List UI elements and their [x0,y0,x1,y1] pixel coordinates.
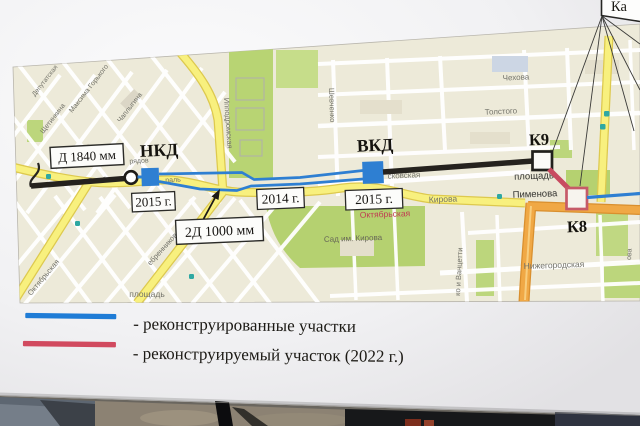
poster-scene: Депутатская Щетинкина Максима Горького Ч… [0,0,640,426]
label-box-2014: 2014 г. [257,187,305,209]
photo-of-poster: Депутатская Щетинкина Максима Горького Ч… [0,0,640,426]
label-k8: К8 [567,217,588,237]
label-box-2d1000: 2Д 1000 мм [176,217,264,245]
street-label: Чехова [502,72,529,82]
gravel-patch [140,410,220,426]
street-label: ова [626,248,634,260]
chamber-k9-square [533,152,553,171]
street-label: Толстого [485,106,518,116]
legend-swatch-red [23,341,116,348]
red-debris [424,420,434,426]
chamber-nkd-square [141,168,159,187]
street-label: Шевченко [327,88,337,123]
label-box-d1840: Д 1840 мм [50,144,124,169]
label-2d1000: 2Д 1000 мм [185,223,255,241]
street-label: Нижегородская [523,259,584,271]
callout-label: Ка [611,0,627,15]
square-label: площадь [514,170,554,182]
street-label: Кирова [429,194,458,205]
label-nkd: НКД [139,139,178,161]
chamber-vkd-square [362,161,384,184]
label-k9: К9 [529,130,550,150]
node-circle-marker [125,171,138,184]
square-label: площадь [129,289,165,299]
red-debris [405,419,421,426]
label-2015-right: 2015 г. [355,191,393,207]
label-box-2015-right: 2015 г. [345,189,403,210]
legend-label-reconstructed: - реконструированные участки [133,314,356,336]
label-2014: 2014 г. [261,190,299,207]
legend-swatch-blue [25,313,116,319]
label-d1840: Д 1840 мм [58,147,117,165]
legend-label-under-reconstruction: - реконструируемый участок (2022 г.) [133,344,404,366]
label-vkd: ВКД [356,134,393,156]
chamber-k8-square [567,188,588,209]
label-box-2015-left: 2015 г. [132,192,176,212]
label-2015-left: 2015 г. [135,193,172,210]
square-label: Пименова [512,188,558,201]
